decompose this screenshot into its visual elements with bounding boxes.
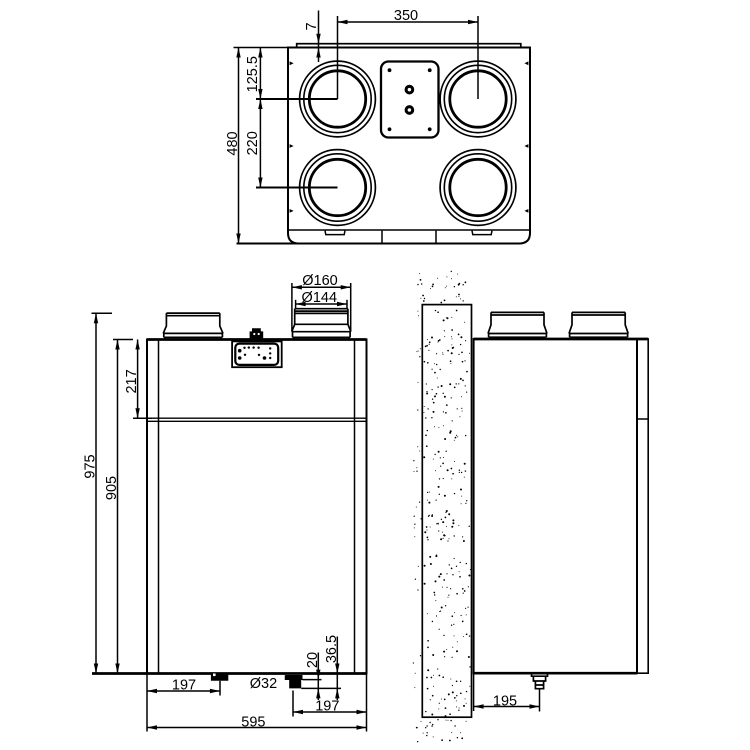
svg-text:220: 220 bbox=[245, 131, 261, 155]
svg-text:7: 7 bbox=[304, 22, 320, 30]
svg-text:125.5: 125.5 bbox=[245, 56, 261, 92]
svg-text:Ø32: Ø32 bbox=[250, 676, 277, 692]
